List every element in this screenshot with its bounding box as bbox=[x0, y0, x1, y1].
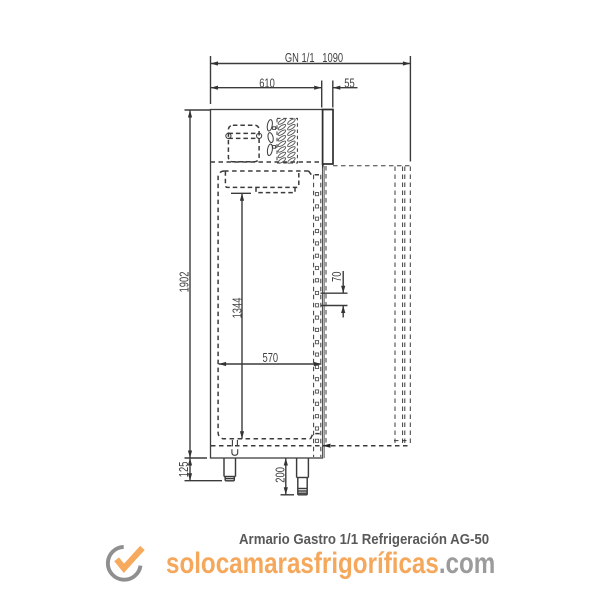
svg-text:1344: 1344 bbox=[231, 298, 245, 319]
svg-text:1902: 1902 bbox=[178, 272, 192, 293]
svg-text:GN 1/1 1090: GN 1/1 1090 bbox=[285, 51, 343, 65]
svg-text:200: 200 bbox=[274, 467, 288, 483]
svg-text:570: 570 bbox=[263, 351, 279, 365]
svg-text:70: 70 bbox=[331, 272, 345, 282]
svg-text:125: 125 bbox=[178, 462, 192, 478]
svg-text:55: 55 bbox=[344, 77, 354, 91]
svg-text:610: 610 bbox=[259, 77, 275, 91]
